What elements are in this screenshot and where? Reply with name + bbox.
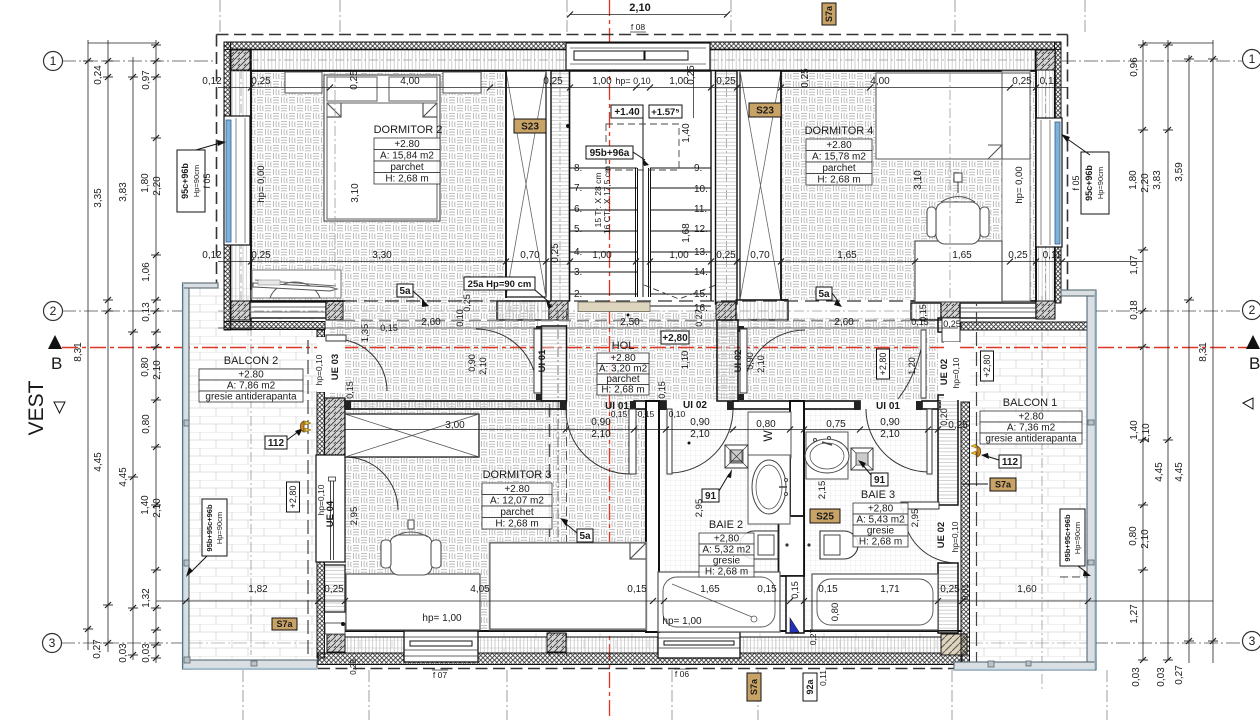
- svg-text:0,03: 0,03: [141, 643, 152, 663]
- svg-text:3,00: 3,00: [445, 420, 465, 431]
- svg-text:DORMITOR 2: DORMITOR 2: [374, 124, 443, 136]
- svg-text:1,07: 1,07: [1129, 255, 1140, 275]
- svg-text:UE 02: UE 02: [936, 522, 947, 548]
- svg-text:2.: 2.: [574, 289, 582, 300]
- svg-text:0,20: 0,20: [939, 408, 949, 426]
- svg-text:+1.40: +1.40: [614, 107, 640, 118]
- svg-text:1,00: 1,00: [592, 250, 612, 261]
- svg-text:91: 91: [705, 491, 717, 502]
- svg-text:112: 112: [268, 438, 285, 449]
- svg-text:f 06: f 06: [675, 669, 689, 679]
- svg-text:0,24: 0,24: [93, 65, 104, 85]
- svg-text:parchet: parchet: [606, 374, 640, 385]
- svg-text:0,25: 0,25: [462, 294, 472, 312]
- svg-text:0,27: 0,27: [92, 639, 103, 659]
- svg-text:0,80: 0,80: [756, 419, 776, 430]
- svg-text:hp= 0,00: hp= 0,00: [256, 165, 267, 202]
- svg-text:8,31: 8,31: [73, 342, 84, 362]
- svg-text:HOL: HOL: [612, 340, 635, 352]
- svg-text:hp= 0,10: hp= 0,10: [615, 76, 650, 86]
- svg-text:1,80: 1,80: [1128, 170, 1139, 190]
- svg-text:S7a: S7a: [995, 480, 1012, 490]
- svg-text:5a: 5a: [579, 531, 591, 542]
- svg-text:parchet: parchet: [390, 162, 424, 173]
- svg-text:2,95: 2,95: [910, 509, 921, 528]
- svg-text:9.: 9.: [694, 163, 702, 174]
- svg-text:2,20: 2,20: [152, 176, 163, 196]
- svg-text:+2,80: +2,80: [288, 486, 298, 509]
- svg-text:UI 01: UI 01: [537, 349, 548, 372]
- svg-text:0,25: 0,25: [686, 65, 697, 85]
- svg-text:1,40: 1,40: [681, 123, 692, 143]
- svg-text:7.: 7.: [574, 183, 582, 194]
- svg-text:1,00: 1,00: [592, 76, 612, 87]
- svg-text:4,00: 4,00: [400, 76, 420, 87]
- svg-text:3.: 3.: [574, 267, 582, 278]
- svg-text:hp= 1,00: hp= 1,00: [662, 616, 702, 627]
- svg-text:0,15: 0,15: [380, 323, 398, 333]
- svg-text:S25: S25: [816, 512, 834, 523]
- svg-text:0,11: 0,11: [1043, 250, 1062, 261]
- svg-text:gresie antiderapanta: gresie antiderapanta: [985, 434, 1077, 445]
- svg-text:UE 04: UE 04: [325, 500, 336, 527]
- svg-text:95b+95c+96b: 95b+95c+96b: [205, 504, 214, 552]
- svg-text:12.: 12.: [694, 224, 708, 235]
- svg-text:S7a: S7a: [824, 5, 834, 22]
- svg-text:0,27: 0,27: [808, 628, 818, 645]
- svg-text:3,83: 3,83: [1152, 170, 1163, 190]
- svg-text:A: 15,84 m2: A: 15,84 m2: [380, 151, 434, 162]
- svg-text:S23: S23: [521, 122, 539, 133]
- svg-text:hp=0,10: hp=0,10: [951, 357, 961, 388]
- svg-text:0,15: 0,15: [627, 584, 647, 595]
- svg-text:1,27: 1,27: [1129, 604, 1140, 624]
- svg-text:2,10: 2,10: [152, 498, 163, 518]
- svg-text:S7a: S7a: [749, 678, 759, 695]
- svg-text:1,65: 1,65: [700, 584, 720, 595]
- svg-text:0,11: 0,11: [1040, 76, 1059, 87]
- svg-text:VEST: VEST: [25, 380, 48, 435]
- svg-text:0,27: 0,27: [694, 309, 704, 327]
- svg-text:0,15: 0,15: [790, 581, 800, 599]
- svg-text:+2,80: +2,80: [982, 355, 992, 378]
- svg-text:0,11: 0,11: [818, 670, 828, 686]
- svg-text:S23: S23: [756, 106, 774, 117]
- svg-text:0,12: 0,12: [202, 76, 222, 87]
- svg-text:0,27: 0,27: [1174, 665, 1185, 685]
- svg-text:+2,80: +2,80: [714, 534, 740, 545]
- svg-text:0,80: 0,80: [1128, 526, 1139, 546]
- svg-text:A: 5,43 m2: A: 5,43 m2: [856, 515, 905, 526]
- svg-text:2,10: 2,10: [152, 360, 163, 380]
- svg-text:f 05: f 05: [1071, 175, 1081, 190]
- svg-text:5a: 5a: [818, 289, 830, 300]
- svg-text:2,10: 2,10: [1140, 529, 1151, 549]
- svg-text:4,45: 4,45: [1154, 462, 1165, 482]
- svg-text:0,01: 0,01: [960, 583, 970, 600]
- svg-text:0,13: 0,13: [141, 302, 152, 322]
- svg-text:4,00: 4,00: [870, 76, 890, 87]
- svg-text:0,03: 0,03: [1131, 667, 1142, 687]
- svg-text:UI 01: UI 01: [605, 401, 629, 412]
- svg-text:H: 2,68 m: H: 2,68 m: [495, 519, 538, 530]
- svg-text:6.: 6.: [574, 204, 582, 215]
- svg-text:H: 2,68 m: H: 2,68 m: [817, 175, 860, 186]
- svg-text:1,71: 1,71: [880, 584, 900, 595]
- svg-text:DORMITOR 3: DORMITOR 3: [483, 469, 552, 481]
- svg-text:8,31: 8,31: [1198, 342, 1209, 362]
- svg-text:3,10: 3,10: [350, 183, 361, 203]
- svg-text:95b+96a: 95b+96a: [590, 148, 630, 159]
- svg-text:2,60: 2,60: [834, 317, 854, 328]
- svg-text:92a: 92a: [805, 679, 815, 695]
- svg-text:hp=0,10: hp=0,10: [950, 521, 960, 552]
- svg-text:gresie: gresie: [867, 526, 895, 537]
- svg-text:1,20: 1,20: [907, 357, 917, 375]
- svg-text:0,90: 0,90: [690, 417, 710, 428]
- svg-text:0,70: 0,70: [750, 250, 770, 261]
- svg-text:5a: 5a: [399, 286, 411, 297]
- svg-text:0,15: 0,15: [918, 304, 928, 322]
- svg-text:2,20: 2,20: [1140, 173, 1151, 193]
- svg-text:1,35: 1,35: [360, 324, 371, 343]
- svg-text:BALCON 2: BALCON 2: [224, 355, 278, 367]
- svg-text:0,96: 0,96: [1129, 57, 1140, 77]
- svg-text:2,60: 2,60: [421, 317, 441, 328]
- svg-text:1,65: 1,65: [952, 250, 972, 261]
- svg-text:10.: 10.: [694, 184, 708, 195]
- svg-text:W: W: [761, 430, 775, 442]
- svg-text:3: 3: [49, 636, 56, 650]
- svg-text:95c+96b: 95c+96b: [1084, 165, 1094, 201]
- svg-text:A: 15,78 m2: A: 15,78 m2: [812, 152, 866, 163]
- svg-text:2,15: 2,15: [817, 481, 828, 500]
- svg-text:0,15: 0,15: [818, 584, 838, 595]
- svg-text:H: 2,68 m: H: 2,68 m: [705, 567, 748, 578]
- svg-text:5.: 5.: [574, 224, 582, 235]
- svg-text:0,25: 0,25: [349, 70, 360, 90]
- svg-text:2,10: 2,10: [629, 2, 650, 14]
- svg-text:25a Hp=90 cm: 25a Hp=90 cm: [468, 279, 532, 290]
- svg-text:4,45: 4,45: [93, 452, 104, 472]
- svg-text:16 CTr. X 17,5 cm: 16 CTr. X 17,5 cm: [602, 166, 612, 234]
- svg-text:H: 2,68 m: H: 2,68 m: [859, 537, 902, 548]
- svg-text:2,50: 2,50: [620, 317, 640, 328]
- svg-text:A: 3,20 m2: A: 3,20 m2: [599, 364, 648, 375]
- svg-text:1,82: 1,82: [248, 584, 268, 595]
- svg-text:UI 02: UI 02: [733, 350, 744, 373]
- svg-text:0,25: 0,25: [251, 250, 271, 261]
- svg-text:0,03: 0,03: [1156, 667, 1167, 687]
- svg-text:BAIE 3: BAIE 3: [861, 489, 895, 501]
- svg-text:4,45: 4,45: [118, 467, 129, 487]
- svg-text:4,45: 4,45: [1174, 462, 1185, 482]
- svg-text:A: 12,07 m2: A: 12,07 m2: [490, 496, 544, 507]
- svg-text:1,40: 1,40: [1129, 420, 1140, 440]
- svg-text:+2,80: +2,80: [662, 333, 688, 344]
- svg-text:0,25: 0,25: [940, 584, 960, 595]
- svg-text:+2.80: +2.80: [826, 140, 852, 151]
- svg-text:f 08: f 08: [631, 22, 645, 32]
- svg-text:3,59: 3,59: [1174, 162, 1185, 182]
- svg-text:3,30: 3,30: [372, 250, 392, 261]
- svg-text:0,25: 0,25: [948, 420, 968, 431]
- svg-text:0,15: 0,15: [345, 381, 355, 399]
- svg-text:1,00: 1,00: [669, 250, 689, 261]
- svg-text:0,25: 0,25: [349, 659, 358, 675]
- svg-text:95b+95c+96b: 95b+95c+96b: [1063, 514, 1072, 562]
- svg-text:0,90: 0,90: [745, 352, 755, 370]
- svg-text:1,06: 1,06: [141, 262, 152, 282]
- svg-text:+2.80: +2.80: [610, 353, 636, 364]
- svg-text:1,32: 1,32: [141, 588, 152, 608]
- svg-text:0,25: 0,25: [800, 68, 811, 88]
- svg-text:4,05: 4,05: [470, 584, 490, 595]
- svg-text:2,10: 2,10: [690, 429, 710, 440]
- svg-text:2,95: 2,95: [349, 507, 360, 526]
- svg-text:0,15: 0,15: [757, 584, 777, 595]
- svg-text:1,68: 1,68: [681, 223, 692, 243]
- svg-text:3,83: 3,83: [118, 182, 129, 202]
- svg-text:parchet: parchet: [500, 507, 534, 518]
- svg-text:Hp=90cm: Hp=90cm: [215, 512, 224, 544]
- svg-text:hp=0,10: hp=0,10: [314, 354, 324, 385]
- svg-text:f 07: f 07: [433, 670, 447, 680]
- svg-text:0,97: 0,97: [141, 70, 152, 90]
- svg-text:0,80: 0,80: [141, 414, 152, 434]
- svg-text:gresie: gresie: [713, 556, 741, 567]
- svg-text:0,10: 0,10: [455, 309, 465, 327]
- svg-text:hp= 1,00: hp= 1,00: [422, 613, 462, 624]
- svg-text:3: 3: [1249, 634, 1256, 648]
- svg-text:0,25: 0,25: [943, 319, 961, 329]
- svg-text:B: B: [1249, 354, 1260, 373]
- svg-text:2,10: 2,10: [756, 355, 766, 373]
- svg-text:2,10: 2,10: [591, 429, 611, 440]
- svg-text:+2,80: +2,80: [868, 504, 894, 515]
- svg-text:+2.80: +2.80: [238, 370, 264, 381]
- svg-text:A: 7,86 m2: A: 7,86 m2: [227, 381, 276, 392]
- svg-text:0,75: 0,75: [826, 419, 846, 430]
- svg-text:H: 2,68 m: H: 2,68 m: [385, 174, 428, 185]
- svg-text:0,90: 0,90: [880, 417, 900, 428]
- svg-text:4.: 4.: [574, 247, 582, 258]
- svg-text:0,03: 0,03: [118, 643, 129, 663]
- svg-text:0,25: 0,25: [1012, 76, 1032, 87]
- svg-text:B: B: [51, 354, 62, 373]
- svg-text:1,60: 1,60: [1017, 584, 1037, 595]
- svg-text:3,35: 3,35: [93, 188, 104, 208]
- svg-text:BAIE 2: BAIE 2: [709, 519, 743, 531]
- svg-text:1,65: 1,65: [837, 250, 857, 261]
- svg-text:13.: 13.: [694, 247, 708, 258]
- svg-text:UI 02: UI 02: [683, 400, 707, 411]
- svg-text:0,25: 0,25: [550, 243, 561, 263]
- svg-text:112: 112: [1002, 457, 1019, 468]
- svg-text:0,15: 0,15: [638, 409, 655, 419]
- svg-text:0,25: 0,25: [324, 584, 344, 595]
- svg-text:+2.80: +2.80: [1018, 412, 1044, 423]
- svg-text:A: 5,32 m2: A: 5,32 m2: [702, 545, 751, 556]
- svg-text:1,80: 1,80: [140, 173, 151, 193]
- svg-text:S7a: S7a: [276, 619, 293, 629]
- svg-text:1: 1: [1249, 52, 1256, 66]
- svg-text:2: 2: [50, 304, 57, 318]
- svg-text:95c+96b: 95c+96b: [180, 163, 190, 199]
- svg-text:2,10: 2,10: [1141, 423, 1152, 443]
- svg-text:3,10: 3,10: [913, 170, 924, 190]
- svg-text:2,95: 2,95: [694, 499, 705, 518]
- svg-text:+2.80: +2.80: [504, 484, 530, 495]
- svg-text:0,25: 0,25: [543, 76, 563, 87]
- svg-text:0,25: 0,25: [716, 76, 736, 87]
- svg-text:UI 01: UI 01: [876, 401, 900, 412]
- svg-text:0,80: 0,80: [830, 603, 841, 622]
- svg-text:A: 7,36 m2: A: 7,36 m2: [1007, 423, 1056, 434]
- svg-text:2,10: 2,10: [478, 357, 488, 375]
- svg-text:hp=0,10: hp=0,10: [316, 484, 326, 515]
- svg-text:gresie antiderapanta: gresie antiderapanta: [205, 392, 297, 403]
- svg-text:15.: 15.: [694, 289, 708, 300]
- svg-text:1,10: 1,10: [680, 351, 691, 370]
- svg-text:1: 1: [50, 54, 57, 68]
- svg-text:DORMITOR 4: DORMITOR 4: [805, 125, 874, 137]
- svg-text:UE 02: UE 02: [939, 359, 950, 385]
- svg-text:Hp=90cm: Hp=90cm: [1096, 167, 1105, 199]
- svg-text:2,10: 2,10: [880, 429, 900, 440]
- svg-text:0,18: 0,18: [1129, 300, 1140, 320]
- svg-text:UE 03: UE 03: [330, 354, 341, 380]
- svg-text:+1.57⁵: +1.57⁵: [651, 107, 680, 118]
- svg-text:0,15: 0,15: [657, 381, 667, 399]
- svg-text:0,25: 0,25: [251, 76, 271, 87]
- svg-text:0,25: 0,25: [1008, 250, 1028, 261]
- svg-text:2: 2: [1249, 303, 1256, 317]
- svg-text:hp= 0,00: hp= 0,00: [1014, 166, 1025, 203]
- svg-text:11.: 11.: [694, 204, 707, 215]
- svg-text:+2.80: +2.80: [394, 139, 420, 150]
- svg-text:+2,80: +2,80: [878, 353, 888, 376]
- svg-text:H: 2,68 m: H: 2,68 m: [601, 385, 644, 396]
- svg-text:0,80: 0,80: [140, 357, 151, 377]
- svg-text:parchet: parchet: [822, 163, 856, 174]
- svg-text:Hp=90cm: Hp=90cm: [1073, 522, 1082, 554]
- svg-text:0,25: 0,25: [716, 250, 736, 261]
- svg-text:Hp=90cm: Hp=90cm: [192, 165, 201, 197]
- svg-text:1,40: 1,40: [140, 495, 151, 515]
- svg-text:0,12: 0,12: [202, 250, 222, 261]
- svg-text:0,90: 0,90: [467, 354, 477, 372]
- svg-text:0,90: 0,90: [591, 417, 611, 428]
- svg-text:f 05: f 05: [202, 173, 212, 188]
- svg-text:0,70: 0,70: [520, 250, 540, 261]
- svg-text:8.: 8.: [574, 163, 582, 174]
- svg-text:91: 91: [874, 475, 886, 486]
- svg-text:14.: 14.: [694, 267, 708, 278]
- svg-text:BALCON 1: BALCON 1: [1003, 397, 1057, 409]
